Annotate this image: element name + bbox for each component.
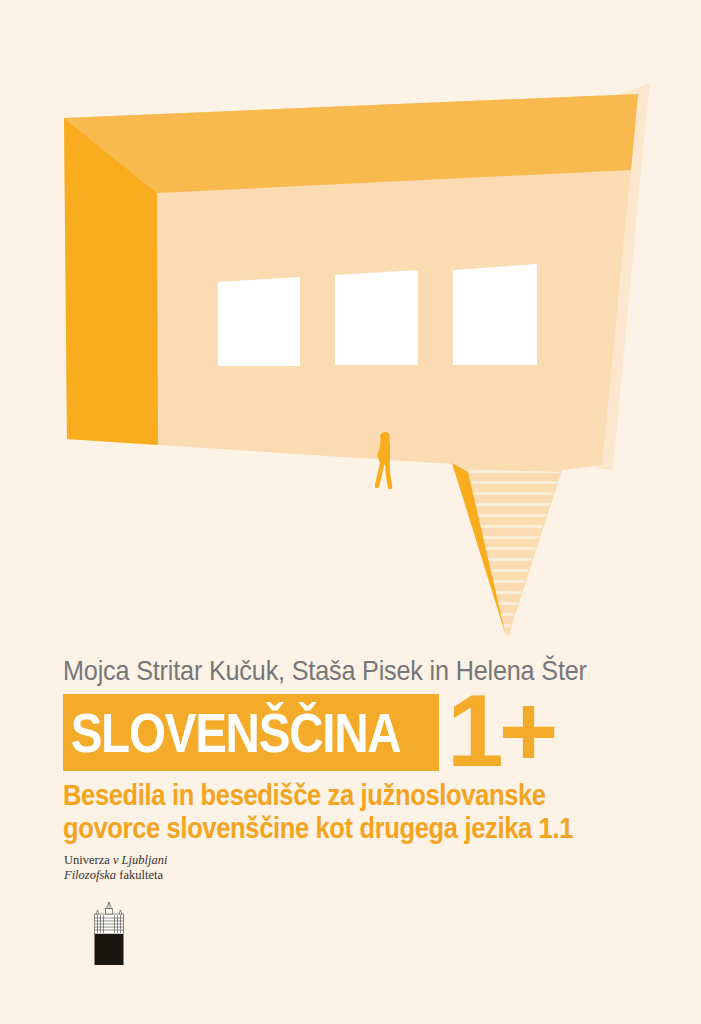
subtitle-line-1: Besedila in besedišče za južnoslovanske <box>63 779 573 812</box>
window-3 <box>453 264 537 365</box>
book-cover: Mojca Stritar Kučuk, Staša Pisek in Hele… <box>0 0 701 1024</box>
title-suffix: 1+ <box>447 680 553 782</box>
publisher-line-2: Filozofska fakulteta <box>64 868 167 883</box>
subtitle: Besedila in besedišče za južnoslovanske … <box>63 779 573 845</box>
subtitle-line-2: govorce slovenščine kot drugega jezika 1… <box>63 812 573 845</box>
publisher-line-1: Univerza v Ljubljani <box>64 853 167 868</box>
book-title: SLOVENŠČINA <box>63 700 400 765</box>
window-1 <box>218 277 300 366</box>
speech-bubble-building-illustration <box>0 0 701 660</box>
stairs <box>459 469 560 636</box>
title-bar: SLOVENŠČINA <box>63 694 439 771</box>
publisher-name: Univerza v Ljubljani Filozofska fakultet… <box>64 853 167 882</box>
logo-black-base <box>95 934 124 965</box>
window-2 <box>335 270 418 365</box>
university-of-ljubljana-building-logo-icon <box>92 902 126 966</box>
